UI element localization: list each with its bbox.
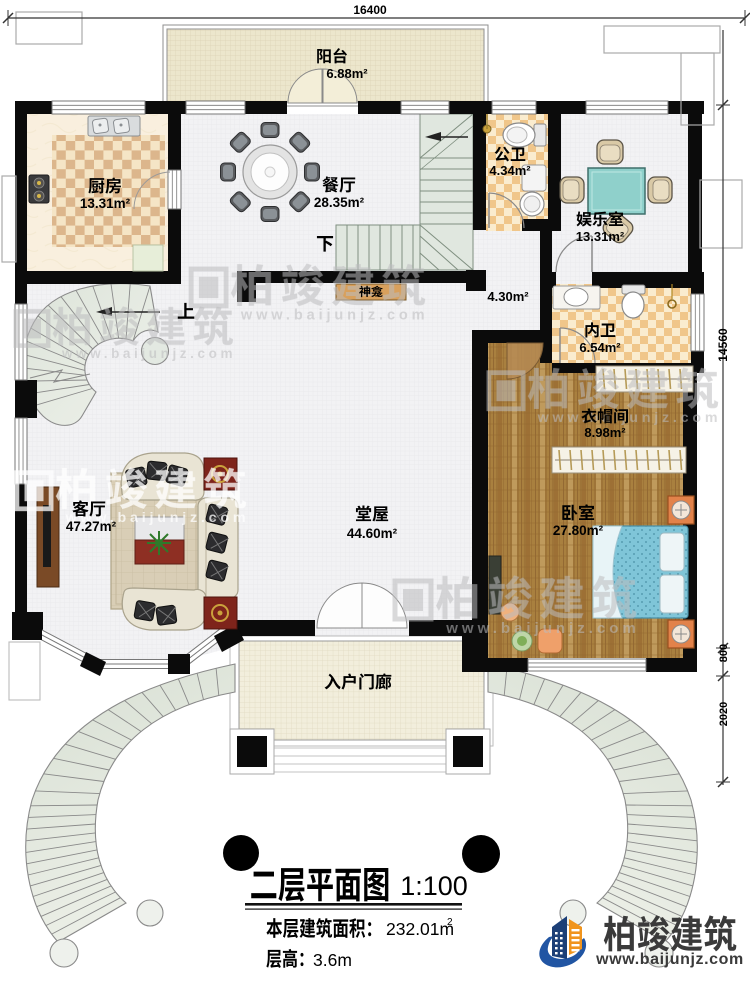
svg-text:6.54m²: 6.54m² xyxy=(579,340,621,355)
svg-text:8.98m²: 8.98m² xyxy=(584,425,626,440)
svg-text:2: 2 xyxy=(447,917,453,928)
svg-text:16400: 16400 xyxy=(353,3,387,17)
svg-text:800: 800 xyxy=(718,644,730,662)
svg-text:4.34m²: 4.34m² xyxy=(489,163,531,178)
svg-text:47.27m²: 47.27m² xyxy=(66,519,117,534)
svg-text:www.baijunjz.com: www.baijunjz.com xyxy=(240,307,429,323)
svg-text:4.30m²: 4.30m² xyxy=(487,289,529,304)
svg-text:44.60m²: 44.60m² xyxy=(347,526,398,541)
svg-text:3.6m: 3.6m xyxy=(313,950,352,970)
svg-text:27.80m²: 27.80m² xyxy=(553,523,604,538)
svg-text:www.baijunjz.com: www.baijunjz.com xyxy=(445,620,639,637)
svg-text:14560: 14560 xyxy=(716,328,730,362)
svg-text:13.31m²: 13.31m² xyxy=(576,229,625,244)
svg-text:www.baijunjz.com: www.baijunjz.com xyxy=(595,951,744,968)
svg-text:232.01m: 232.01m xyxy=(386,919,454,939)
svg-text:13.31m²: 13.31m² xyxy=(80,196,131,211)
svg-text:1:100: 1:100 xyxy=(400,871,468,901)
svg-text:www.baijunjz.com: www.baijunjz.com xyxy=(61,346,236,361)
svg-text:28.35m²: 28.35m² xyxy=(314,195,365,210)
svg-text:www.baijunjz.com: www.baijunjz.com xyxy=(537,410,722,426)
svg-text:6.88m²: 6.88m² xyxy=(326,66,368,81)
svg-text:2020: 2020 xyxy=(718,702,730,726)
